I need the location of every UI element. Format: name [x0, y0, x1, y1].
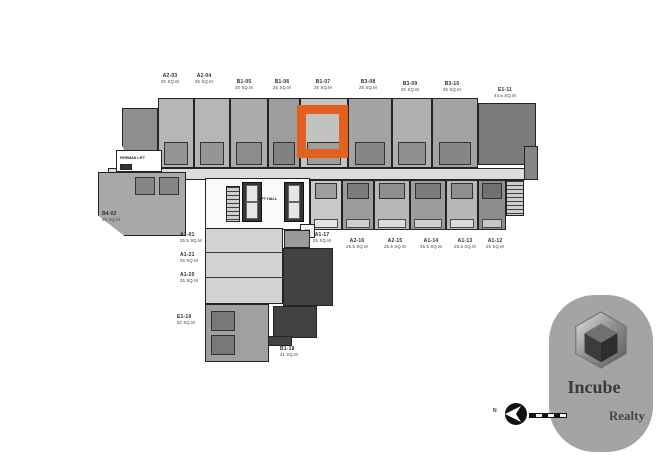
unit-id: B4-02	[102, 211, 117, 217]
unit-area: 25 SQ.M	[313, 238, 331, 243]
unit-area: 25 SQ.M	[443, 87, 461, 92]
unit-area: 25.5 SQ.M	[420, 244, 442, 249]
unit-area: 25 SQ.M	[273, 85, 291, 90]
unit-label-a1-12: A1-1225 SQ.M	[486, 238, 504, 250]
unit-id: B1-18	[280, 346, 295, 352]
unit-label-e1-19: E1-1952 SQ.M	[177, 314, 195, 326]
unit-block-b1-06	[268, 98, 300, 168]
lift-car	[288, 202, 300, 218]
unit-area: 41 SQ.M	[280, 352, 298, 357]
unit-label-b3-08: B3-0825 SQ.M	[359, 79, 377, 91]
unit-block-a1-17	[310, 180, 342, 230]
unit-area: 25 SQ.M	[102, 217, 120, 222]
unit-area: 25 SQ.M	[314, 85, 332, 90]
lift-car	[246, 202, 258, 218]
watermark-brand: Incube	[549, 377, 639, 398]
unit-id: A1-17	[315, 232, 330, 238]
unit-label-a1-14: A1-1425.5 SQ.M	[420, 238, 442, 250]
balcony	[450, 219, 474, 228]
bathroom-pod	[135, 177, 155, 195]
unit-block-b1-05	[230, 98, 268, 168]
unit-area: 25 SQ.M	[401, 87, 419, 92]
unit-area: 25.5 SQ.M	[346, 244, 368, 249]
unit-block-a2-03	[158, 98, 194, 168]
unit-block-b4-02	[98, 172, 186, 236]
bathroom-pod	[415, 183, 441, 199]
unit-block-a2-15	[374, 180, 410, 230]
unit-block-b3-10	[432, 98, 478, 168]
unit-id: B1-05	[237, 79, 252, 85]
north-label: N	[493, 408, 497, 414]
unit-area: 25.5 SQ.M	[454, 244, 476, 249]
unit-label-b3-09: B3-0925 SQ.M	[401, 81, 419, 93]
stairs-right	[506, 180, 524, 216]
unit-block-a2-04	[194, 98, 230, 168]
unit-label-b1-18: B1-1841 SQ.M	[280, 346, 298, 358]
balcony	[314, 219, 338, 228]
unit-id: A1-20	[180, 272, 195, 278]
dark-unit-b1-18	[273, 306, 317, 338]
bathroom-pod	[439, 142, 471, 165]
balcony	[482, 219, 503, 228]
unit-area: 25 SQ.M	[359, 85, 377, 90]
right-edge-block	[524, 146, 538, 180]
pod-strip	[284, 230, 310, 248]
scale-bar	[529, 413, 567, 418]
unit-label-a2-03: A2-0325 SQ.M	[161, 73, 179, 85]
dark-unit-upper	[283, 248, 333, 306]
bathroom-pod	[159, 177, 179, 195]
bathroom-pod	[482, 183, 502, 199]
unit-id: B3-10	[445, 81, 460, 87]
lift-shaft-2	[284, 182, 304, 222]
unit-area: 25 SQ.M	[180, 258, 198, 263]
unit-id: A1-13	[458, 238, 473, 244]
unit-area: 25 SQ.M	[235, 85, 253, 90]
bathroom-pod	[355, 142, 385, 165]
unit-label-a2-15: A2-1525.5 SQ.M	[384, 238, 406, 250]
unit-label-a1-20: A1-2025 SQ.M	[180, 272, 198, 284]
unit-area: 25 SQ.M	[195, 79, 213, 84]
lift-hall-label: LIFT HALL	[258, 197, 277, 201]
bathroom-pod	[200, 142, 225, 165]
unit-label-b1-05: B1-0525 SQ.M	[235, 79, 253, 91]
balcony	[346, 219, 370, 228]
unit-id: A1-21	[180, 252, 195, 258]
unit-id: B3-09	[403, 81, 418, 87]
watermark-incube-realty: Incube Realty	[549, 295, 653, 452]
fireman-lift-tag	[120, 164, 132, 170]
bathroom-pod	[379, 183, 405, 199]
unit-area: 25 SQ.M	[161, 79, 179, 84]
bathroom-pod	[164, 142, 189, 165]
unit-block-a1-13	[446, 180, 478, 230]
unit-id: A2-15	[388, 238, 403, 244]
unit-label-b3-10: B3-1025 SQ.M	[443, 81, 461, 93]
unit-id: A2-16	[350, 238, 365, 244]
unit-id: A1-12	[488, 238, 503, 244]
unit-label-a2-04: A2-0425 SQ.M	[195, 73, 213, 85]
selected-unit-highlight[interactable]	[297, 105, 348, 158]
compass-icon	[503, 401, 529, 427]
unit-area: 52 SQ.M	[177, 320, 195, 325]
stairs-core	[226, 186, 240, 222]
unit-block-a1-12	[478, 180, 506, 230]
watermark-brand-secondary: Realty	[609, 408, 645, 424]
lift-car	[288, 185, 300, 201]
unit-block-a1-01-21-20	[205, 228, 283, 304]
dark-unit-foot	[268, 336, 292, 346]
unit-block-b3-08	[348, 98, 392, 168]
bathroom-pod	[211, 311, 235, 331]
unit-label-b1-06: B1-0625 SQ.M	[273, 79, 291, 91]
balcony	[414, 219, 441, 228]
unit-id: A1-14	[424, 238, 439, 244]
unit-block-a2-16	[342, 180, 374, 230]
unit-area: 44.5 SQ.M	[494, 93, 516, 98]
floor-plan: LIFT HALL GB FIREMAN LIFT A2-0325 SQ.MA2…	[0, 0, 659, 465]
lift-car	[246, 185, 258, 201]
unit-label-a1-21: A1-2125 SQ.M	[180, 252, 198, 264]
unit-id: A1-01	[180, 232, 195, 238]
fireman-lift-label: FIREMAN LIFT	[120, 156, 145, 160]
unit-label-b1-07: B1-0725 SQ.M	[314, 79, 332, 91]
lift-shaft-1	[242, 182, 262, 222]
bathroom-pod	[451, 183, 474, 199]
unit-label-a2-16: A2-1625.5 SQ.M	[346, 238, 368, 250]
unit-label-a1-17: A1-1725 SQ.M	[313, 232, 331, 244]
unit-id: E1-19	[177, 314, 191, 320]
incube-logo-icon	[572, 309, 630, 371]
unit-block-a1-14	[410, 180, 446, 230]
balcony	[378, 219, 405, 228]
bathroom-pod	[236, 142, 262, 165]
unit-label-b4-02: B4-0225 SQ.M	[102, 211, 120, 223]
bathroom-pod	[211, 335, 235, 355]
bathroom-pod	[398, 142, 425, 165]
wall-line	[206, 277, 282, 278]
unit-area: 25 SQ.M	[486, 244, 504, 249]
unit-area: 25.5 SQ.M	[384, 244, 406, 249]
unit-block-e1-19	[205, 304, 269, 362]
bathroom-pod	[315, 183, 338, 199]
unit-label-a1-13: A1-1325.5 SQ.M	[454, 238, 476, 250]
unit-id: A2-03	[163, 73, 178, 79]
bathroom-pod	[347, 183, 370, 199]
unit-label-a1-01: A1-0125.5 SQ.M	[180, 232, 202, 244]
unit-id: B1-07	[316, 79, 331, 85]
unit-id: B3-08	[361, 79, 376, 85]
unit-area: 25.5 SQ.M	[180, 238, 202, 243]
wall-line	[206, 252, 282, 253]
unit-area: 25 SQ.M	[180, 278, 198, 283]
unit-id: E1-11	[498, 87, 512, 93]
unit-id: B1-06	[275, 79, 290, 85]
unit-label-e1-11: E1-1144.5 SQ.M	[494, 87, 516, 99]
bathroom-pod	[273, 142, 295, 165]
unit-id: A2-04	[197, 73, 212, 79]
unit-block-b3-09	[392, 98, 432, 168]
